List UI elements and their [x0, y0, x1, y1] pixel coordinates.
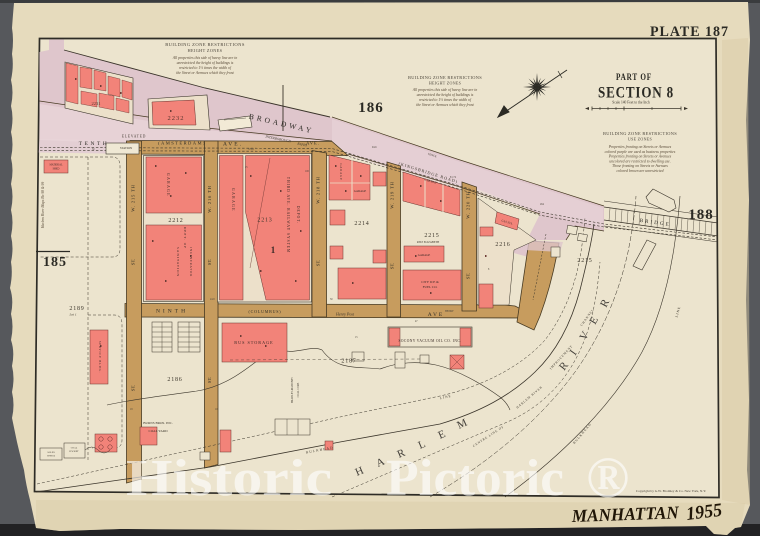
svg-text:colored purple are used as bus: colored purple are used as business prop…	[605, 150, 676, 154]
svg-text:BUILDING ZONE RESTRICTIONS: BUILDING ZONE RESTRICTIONS	[603, 131, 677, 136]
svg-text:1955: 1955	[685, 500, 724, 525]
svg-text:186: 186	[358, 100, 384, 116]
svg-text:Lot 1: Lot 1	[68, 313, 76, 317]
svg-text:restricted to 1½ times the wid: restricted to 1½ times the width of	[419, 98, 472, 102]
svg-text:the Street or Avenues which th: the Street or Avenues which they front	[176, 71, 234, 75]
svg-text:Properties fronting on Streets: Properties fronting on Streets or Avenue…	[608, 155, 672, 159]
svg-text:CITY ICE &: CITY ICE &	[421, 280, 439, 284]
svg-text:ST.: ST.	[207, 377, 212, 383]
svg-text:W. 218 TH: W. 218 TH	[316, 176, 321, 204]
svg-text:Properties fronting on Streets: Properties fronting on Streets or Avenue…	[608, 145, 672, 149]
svg-text:W. 216 TH: W. 216 TH	[207, 185, 212, 213]
svg-text:2214: 2214	[354, 221, 369, 227]
svg-text:FUEL CO.: FUEL CO.	[423, 285, 438, 289]
svg-text:GARAGE: GARAGE	[166, 173, 170, 197]
svg-text:HEIGHT ZONES: HEIGHT ZONES	[429, 81, 461, 86]
svg-text:AVE: AVE	[428, 312, 445, 318]
svg-text:AVE.: AVE.	[306, 141, 320, 146]
svg-text:(COLUMBUS): (COLUMBUS)	[249, 309, 282, 314]
svg-text:ST.: ST.	[466, 273, 471, 279]
svg-text:W. 215 TH: W. 215 TH	[131, 184, 136, 212]
svg-text:376.8: 376.8	[248, 148, 255, 151]
svg-text:All properties this side of he: All properties this side of heavy line a…	[172, 56, 238, 60]
svg-text:Harlem River Maps No 98 & 99: Harlem River Maps No 98 & 99	[41, 182, 45, 230]
svg-text:SHED: SHED	[53, 168, 60, 171]
svg-text:the Street or Avenues which th: the Street or Avenues which they front	[416, 103, 474, 107]
svg-text:STATION: STATION	[120, 146, 133, 150]
svg-text:Those fronting on Streets or A: Those fronting on Streets or Avenues	[612, 164, 668, 168]
svg-text:COAL CORP.: COAL CORP.	[297, 382, 300, 397]
svg-text:BURNS BROS. INC.: BURNS BROS. INC.	[143, 421, 173, 425]
svg-text:colored brown are unrestricted: colored brown are unrestricted	[617, 169, 664, 173]
svg-text:unrestricted the height of bui: unrestricted the height of buildings is	[417, 93, 474, 97]
svg-text:PART OF: PART OF	[616, 72, 652, 82]
svg-text:DEPT. OF: DEPT. OF	[183, 227, 187, 249]
svg-text:BUS STORAGE: BUS STORAGE	[234, 340, 273, 345]
svg-text:Pictoric: Pictoric	[386, 450, 564, 507]
svg-text:BRADLEY-MAHONEY: BRADLEY-MAHONEY	[291, 377, 294, 403]
svg-text:DEPOT.: DEPOT.	[296, 206, 300, 224]
svg-text:ST.: ST.	[207, 259, 212, 265]
svg-text:W. 219 TH: W. 219 TH	[390, 181, 395, 209]
svg-text:BUILDING ZONE RESTRICTIONS: BUILDING ZONE RESTRICTIONS	[408, 75, 482, 80]
svg-text:2186: 2186	[167, 377, 182, 383]
svg-text:GARAGE: GARAGE	[339, 163, 343, 180]
svg-text:GARAGE: GARAGE	[354, 189, 367, 193]
svg-text:uncolored are restricted to dw: uncolored are restricted to dwelling use…	[609, 159, 670, 163]
svg-text:MATERIAL: MATERIAL	[49, 164, 63, 167]
svg-text:THIRD AVE. RAILWAY SYSTEM: THIRD AVE. RAILWAY SYSTEM	[286, 177, 290, 253]
svg-text:TENTH: TENTH	[79, 141, 110, 147]
svg-text:BUILDING ZONE RESTRICTIONS: BUILDING ZONE RESTRICTIONS	[165, 42, 245, 47]
svg-text:MANHATTAN: MANHATTAN	[570, 502, 680, 526]
svg-text:SOCONY VACUUM OIL CO. INC.: SOCONY VACUUM OIL CO. INC.	[399, 339, 462, 343]
svg-text:24.8: 24.8	[210, 298, 215, 301]
svg-text:2231: 2231	[92, 101, 101, 106]
svg-text:W. 220 TH: W. 220 TH	[466, 191, 471, 219]
svg-text:SERVICE BLDG.: SERVICE BLDG.	[98, 341, 102, 373]
svg-text:Historic: Historic	[126, 450, 332, 507]
svg-text:2215: 2215	[424, 233, 439, 239]
svg-text:USE ZONES: USE ZONES	[628, 137, 652, 142]
svg-text:RITZ ELIZABETH: RITZ ELIZABETH	[417, 241, 439, 244]
svg-text:AVE.: AVE.	[223, 142, 243, 148]
svg-text:POCKET: POCKET	[69, 450, 79, 453]
svg-text:All properties this side of he: All properties this side of heavy line a…	[412, 88, 478, 92]
svg-text:2187: 2187	[341, 359, 356, 365]
svg-text:®: ®	[586, 445, 629, 510]
svg-text:ST.: ST.	[390, 263, 395, 269]
svg-text:unrestricted the height of bui: unrestricted the height of buildings is	[177, 61, 234, 65]
svg-text:1: 1	[271, 245, 276, 255]
svg-text:restricted to 1½ times the wid: restricted to 1½ times the width of	[179, 66, 232, 70]
svg-text:2215: 2215	[577, 258, 592, 264]
svg-text:ST.: ST.	[131, 259, 136, 265]
svg-text:Scale 140 Feet to the Inch: Scale 140 Feet to the Inch	[612, 101, 650, 105]
svg-text:2216: 2216	[495, 242, 510, 248]
svg-text:COAL YARD: COAL YARD	[148, 429, 168, 433]
svg-text:NINTH: NINTH	[156, 309, 188, 315]
svg-text:ELEVATED: ELEVATED	[122, 135, 146, 139]
svg-text:HEIGHT ZONES: HEIGHT ZONES	[188, 48, 223, 53]
svg-text:2232: 2232	[168, 115, 185, 122]
svg-text:2212: 2212	[168, 218, 183, 224]
svg-text:ST.: ST.	[131, 385, 136, 391]
svg-text:SECTION 8: SECTION 8	[598, 85, 674, 102]
svg-text:GARAGE: GARAGE	[231, 188, 235, 212]
svg-text:Henry Post: Henry Post	[335, 312, 355, 317]
svg-text:INCINERATOR: INCINERATOR	[189, 247, 193, 277]
svg-text:94.6: 94.6	[372, 146, 377, 149]
svg-text:2213: 2213	[257, 218, 272, 224]
svg-text:SANITATION: SANITATION	[176, 247, 180, 277]
svg-text:GARAGE: GARAGE	[418, 253, 431, 257]
svg-text:OFFICE: OFFICE	[47, 455, 56, 458]
svg-text:PLATE 187: PLATE 187	[650, 24, 729, 40]
svg-text:2189: 2189	[69, 306, 84, 312]
svg-text:185: 185	[43, 255, 67, 270]
svg-text:ST.: ST.	[316, 260, 321, 266]
svg-text:HENRY: HENRY	[445, 310, 454, 313]
svg-text:(AMSTERDAM): (AMSTERDAM)	[158, 141, 206, 146]
svg-text:188: 188	[688, 207, 714, 223]
